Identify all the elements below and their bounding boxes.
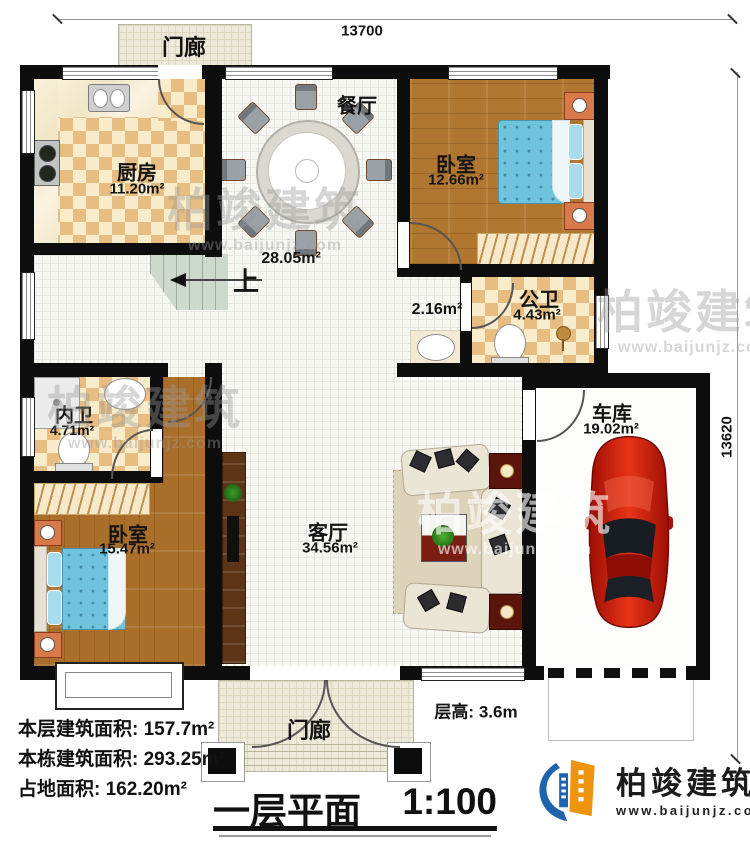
door-opening bbox=[398, 222, 409, 268]
wardrobe bbox=[477, 233, 595, 265]
floor-height-label: 层高: 3.6m bbox=[434, 698, 517, 723]
car-icon bbox=[583, 432, 675, 632]
dimension-tick bbox=[730, 68, 741, 79]
window bbox=[421, 667, 525, 681]
nightstand bbox=[564, 92, 596, 120]
window bbox=[448, 66, 558, 80]
bed-pillow bbox=[568, 124, 583, 160]
wall bbox=[205, 363, 222, 680]
compass-ornament bbox=[500, 464, 514, 478]
porch-top-label: 门廊 bbox=[162, 30, 206, 62]
stat-total-area: 本栋建筑面积: 293.25m² bbox=[18, 744, 225, 771]
lamp-icon bbox=[572, 208, 587, 223]
stairs-up-label: 上 bbox=[233, 262, 259, 299]
tv-icon bbox=[227, 516, 239, 562]
brand-name: 柏竣建筑 bbox=[616, 758, 750, 803]
garage-door-dashed bbox=[548, 668, 686, 678]
door-opening bbox=[158, 65, 202, 79]
dining-area: 28.05m² bbox=[261, 250, 321, 268]
burner bbox=[39, 165, 56, 182]
lamp-icon bbox=[40, 525, 55, 540]
nightstand bbox=[34, 632, 62, 658]
chair-icon bbox=[295, 84, 317, 110]
window bbox=[21, 272, 35, 340]
brand-text: 柏竣建筑 www.baijunjz.com bbox=[616, 758, 750, 818]
bedroom-top-area: 12.66m² bbox=[428, 172, 484, 189]
lamp-icon bbox=[572, 98, 587, 113]
wall bbox=[205, 65, 222, 257]
burner bbox=[39, 145, 56, 162]
garage-area: 19.02m² bbox=[583, 421, 639, 438]
bed-pillow bbox=[47, 590, 62, 625]
floor-plan-canvas: 13700 13620 bbox=[0, 0, 750, 845]
driveway-outline bbox=[548, 678, 694, 741]
sink-basin bbox=[93, 89, 108, 108]
door-opening bbox=[523, 390, 535, 440]
dining-label: 餐厅 bbox=[337, 90, 377, 119]
top-dimension-label: 13700 bbox=[341, 23, 383, 40]
hallway-area: 2.16m² bbox=[412, 301, 463, 319]
plant-icon bbox=[224, 484, 242, 502]
wardrobe bbox=[34, 483, 150, 515]
porch-bottom-steps bbox=[219, 744, 411, 769]
bed-pillow bbox=[47, 552, 62, 587]
right-dimension-line bbox=[737, 72, 738, 760]
public-bath-area: 4.43m² bbox=[513, 307, 561, 324]
nightstand bbox=[564, 202, 596, 230]
porch-bottom-label: 门廊 bbox=[287, 713, 331, 745]
window bbox=[595, 295, 609, 349]
stat-floor-area: 本层建筑面积: 157.7m² bbox=[18, 714, 214, 741]
shower-head-stem bbox=[562, 339, 564, 351]
bedroom-left-area: 15.47m² bbox=[99, 541, 155, 558]
washbasin-icon bbox=[104, 378, 146, 410]
wall bbox=[686, 666, 710, 680]
window bbox=[62, 66, 160, 80]
side-table bbox=[489, 453, 524, 489]
door-opening bbox=[250, 666, 400, 680]
door-opening bbox=[461, 283, 471, 331]
title-underline-thin bbox=[219, 835, 491, 837]
nightstand bbox=[34, 520, 62, 546]
chair-icon bbox=[220, 159, 246, 181]
inner-bath-area: 4.71m² bbox=[50, 422, 94, 438]
plant-icon bbox=[432, 525, 454, 547]
brand-logo-icon bbox=[534, 748, 608, 828]
chair-icon bbox=[366, 159, 392, 181]
sink-basin bbox=[110, 89, 125, 108]
stove-icon bbox=[34, 140, 60, 186]
stairs-arrow-head bbox=[170, 273, 186, 287]
kitchen-area: 11.20m² bbox=[109, 181, 164, 198]
side-table bbox=[489, 594, 524, 630]
porch-column-core bbox=[394, 748, 422, 774]
lamp-icon bbox=[40, 637, 55, 652]
washbasin-icon bbox=[417, 334, 455, 361]
living-area: 34.56m² bbox=[302, 540, 358, 557]
bed-pillow bbox=[568, 163, 583, 199]
bed-duvet-fold bbox=[108, 548, 126, 630]
right-dimension-label: 13620 bbox=[719, 416, 736, 458]
brand-logo: 柏竣建筑 www.baijunjz.com bbox=[534, 748, 750, 828]
window bbox=[225, 66, 333, 80]
bed-headboard bbox=[34, 546, 47, 632]
window bbox=[21, 397, 35, 457]
kitchen-sink-icon bbox=[88, 84, 130, 112]
compass-ornament bbox=[500, 605, 514, 619]
wall bbox=[20, 243, 222, 255]
dining-table-center bbox=[295, 159, 319, 183]
wall bbox=[696, 373, 710, 680]
window bbox=[21, 90, 35, 154]
title-underline bbox=[213, 826, 497, 831]
wall bbox=[20, 363, 168, 377]
top-dimension-line bbox=[57, 19, 733, 20]
brand-url: www.baijunjz.com bbox=[616, 803, 750, 818]
bay-window-inner bbox=[65, 672, 172, 698]
wall bbox=[522, 373, 710, 388]
stat-footprint: 占地面积: 162.20m² bbox=[18, 774, 187, 801]
